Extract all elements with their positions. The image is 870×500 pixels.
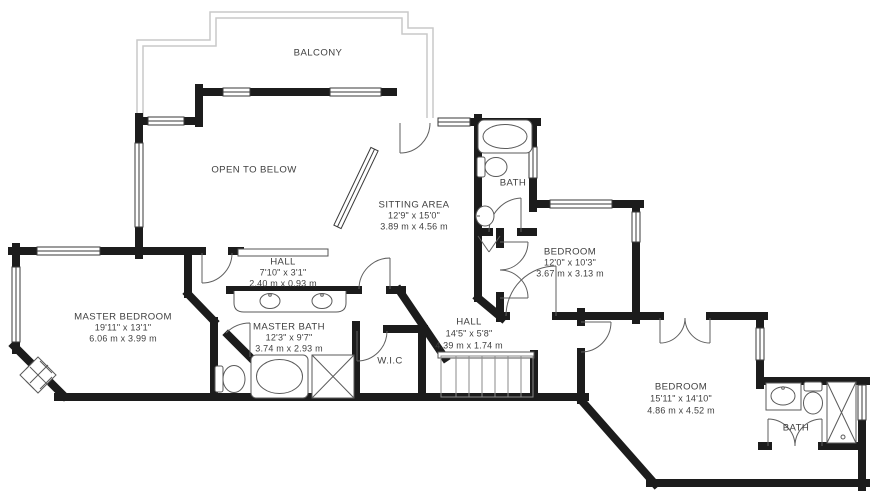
room-labels: BALCONY OPEN TO BELOW SITTING AREA 12'9"… (74, 48, 809, 434)
vanity (234, 291, 346, 312)
closet-door-arc (500, 270, 528, 298)
shower (312, 355, 354, 398)
floorplan-canvas: BALCONY OPEN TO BELOW SITTING AREA 12'9"… (0, 0, 870, 500)
bedroom-right-imperial: 12'0" x 10'3" (544, 257, 596, 267)
balcony-label: BALCONY (294, 48, 343, 59)
bathtub (251, 355, 308, 398)
staircase (441, 356, 533, 397)
double-door-arc (685, 318, 710, 343)
sink (766, 383, 801, 410)
master-bath-metric: 3.74 m x 2.93 m (255, 343, 323, 353)
bathtub (478, 120, 532, 153)
window (550, 200, 612, 208)
window (37, 247, 100, 255)
window (223, 88, 250, 96)
hall-upper-metric: 2.40 m x 0.93 m (249, 278, 317, 288)
door-arc (359, 258, 390, 289)
window (330, 88, 381, 96)
door-arc (202, 253, 232, 283)
bath-upper-label: BATH (500, 178, 526, 189)
bedroom-lower-label: BEDROOM (655, 382, 707, 393)
window (12, 267, 20, 342)
sitting-area-metric: 3.89 m x 4.56 m (380, 221, 448, 231)
balcony-outline (137, 12, 433, 118)
hall-lower-label: HALL (456, 317, 482, 328)
bedroom-right-label: BEDROOM (544, 247, 596, 258)
open-to-below-label: OPEN TO BELOW (211, 165, 297, 176)
door-arc (400, 123, 430, 153)
window (756, 328, 764, 360)
door-arc (581, 322, 611, 352)
sitting-area-label: SITTING AREA (379, 200, 450, 211)
master-bath-label: MASTER BATH (253, 322, 325, 333)
sitting-area-imperial: 12'9" x 15'0" (388, 210, 440, 220)
shower (827, 382, 856, 443)
window (632, 212, 640, 242)
hall-lower-imperial: 14'5" x 5'8" (446, 328, 493, 338)
window (334, 147, 378, 228)
bedroom-lower-metric: 4.86 m x 4.52 m (647, 405, 715, 415)
sink (476, 206, 494, 226)
window (858, 385, 866, 420)
stair-railing (438, 352, 534, 358)
window (135, 143, 143, 227)
floorplan-drawing: BALCONY OPEN TO BELOW SITTING AREA 12'9"… (0, 0, 870, 500)
window (148, 117, 184, 125)
hall-upper-imperial: 7'10" x 3'1" (260, 267, 307, 277)
bedroom-lower-imperial: 15'11" x 14'10" (650, 393, 712, 403)
open-to-below-railing (238, 249, 328, 256)
master-bath-imperial: 12'3" x 9'7" (266, 332, 313, 342)
window (438, 118, 470, 126)
closet-door-arc (500, 242, 528, 270)
master-bedroom-label: MASTER BEDROOM (74, 312, 172, 323)
toilet (477, 157, 507, 177)
master-bedroom-imperial: 19'11" x 13'1" (95, 322, 152, 332)
wic-label: W.I.C (377, 356, 402, 367)
double-door-arc (660, 318, 685, 343)
toilet (804, 382, 823, 414)
hall-upper-label: HALL (270, 257, 296, 268)
toilet (215, 366, 245, 393)
hall-lower-metric: 4.39 m x 1.74 m (435, 340, 503, 350)
bedroom-right-metric: 3.67 m x 3.13 m (536, 268, 604, 278)
master-bedroom-metric: 6.06 m x 3.99 m (89, 333, 157, 343)
bath-lower-label: BATH (783, 423, 809, 434)
